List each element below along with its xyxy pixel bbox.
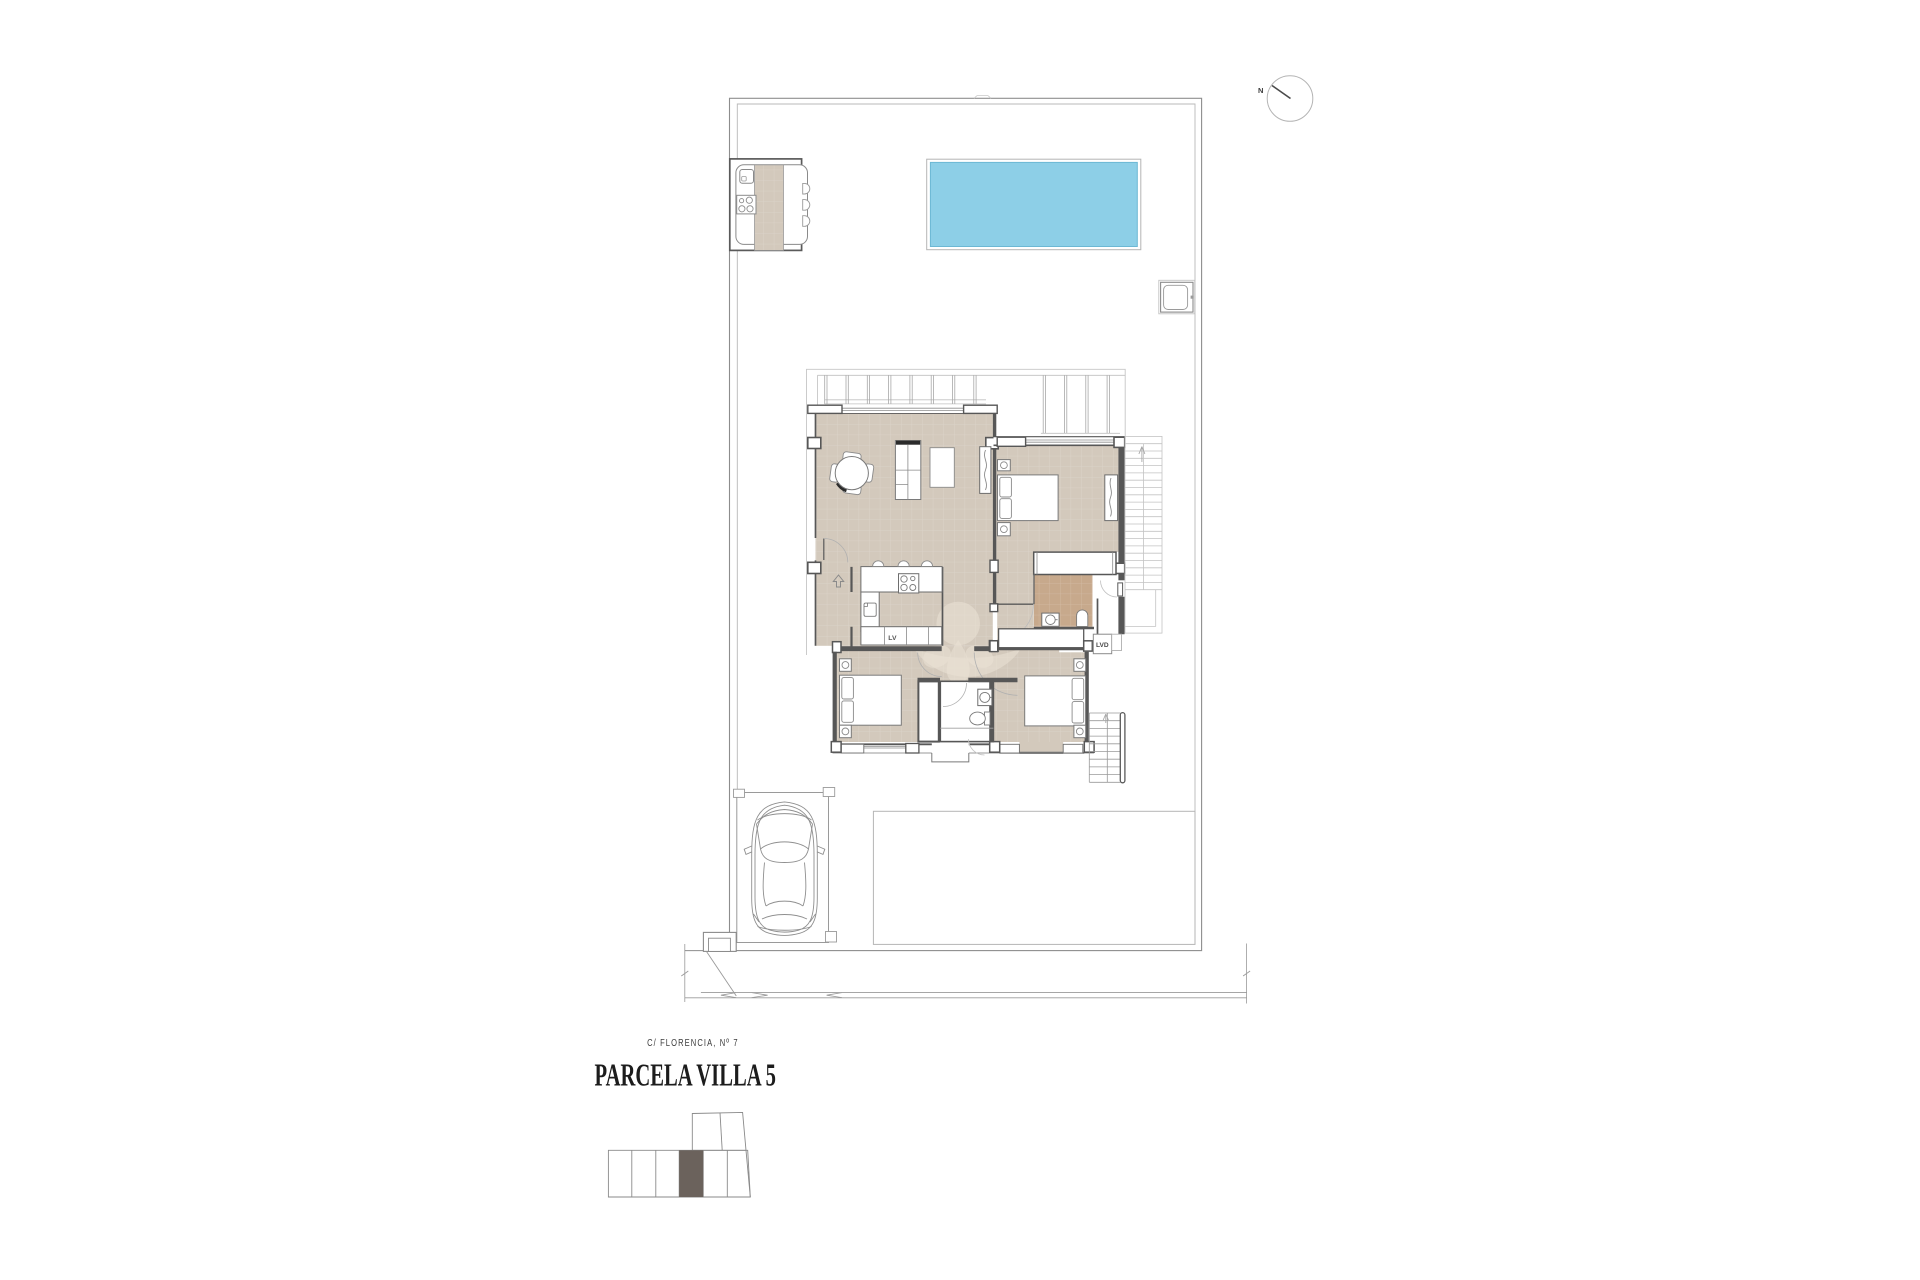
svg-text:LVD: LVD [1096,642,1109,649]
svg-text:LV: LV [888,635,897,642]
svg-text:N: N [1258,86,1263,95]
svg-text:C/ FLORENCIA, Nº 7: C/ FLORENCIA, Nº 7 [647,1037,739,1048]
svg-text:PARCELA VILLA 5: PARCELA VILLA 5 [595,1057,776,1092]
